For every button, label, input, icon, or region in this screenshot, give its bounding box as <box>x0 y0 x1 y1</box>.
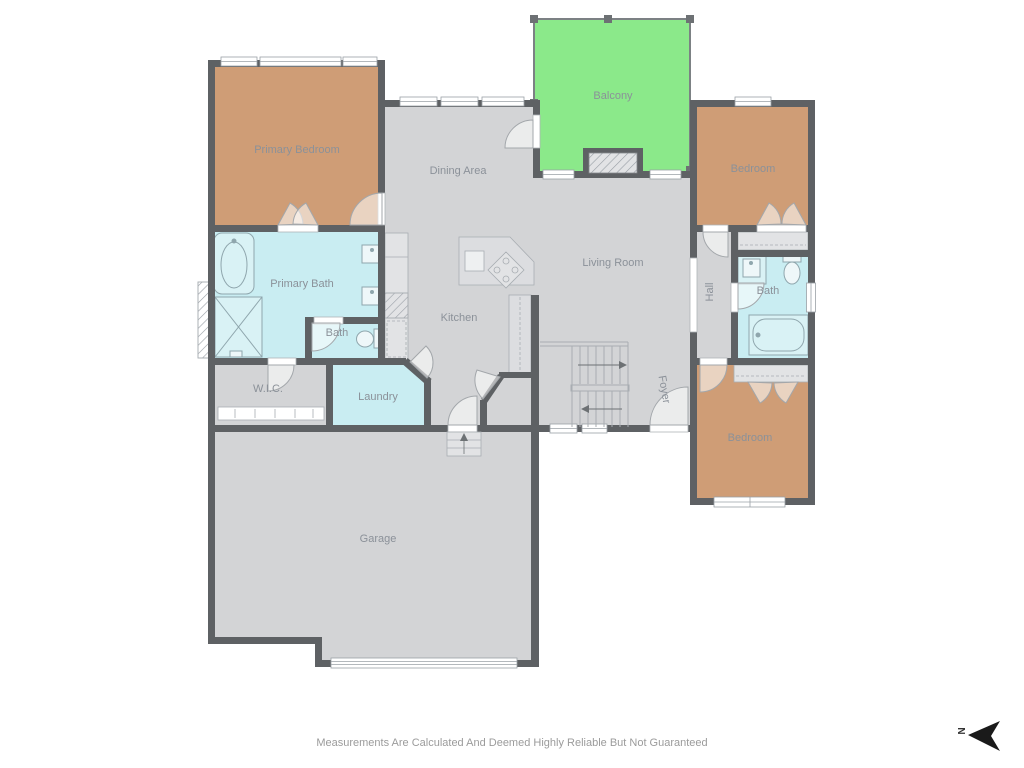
closet-lower-bedroom <box>734 365 808 382</box>
island-sink <box>465 251 484 271</box>
floorplan-page: Primary Bedroom Primary Bath Bath W.I.C.… <box>0 0 1024 768</box>
closet-upper-bedroom <box>738 232 808 250</box>
label-wic: W.I.C. <box>253 383 283 395</box>
north-compass: N <box>955 721 1000 751</box>
label-living: Living Room <box>582 257 643 269</box>
wic-shelf <box>218 407 324 420</box>
fireplace <box>583 148 643 178</box>
label-hall: Hall <box>704 283 716 302</box>
label-bedroom-upper: Bedroom <box>731 163 776 175</box>
garage-steps <box>447 432 481 456</box>
label-bath-hall: Bath <box>757 285 780 297</box>
cooktop-hatched <box>385 293 408 318</box>
disclaimer-text: Measurements Are Calculated And Deemed H… <box>316 737 707 749</box>
label-kitchen: Kitchen <box>441 312 478 324</box>
north-label: N <box>955 727 966 734</box>
label-primary-bath: Primary Bath <box>270 278 334 290</box>
ensuite-toilet <box>357 331 374 347</box>
label-laundry: Laundry <box>358 391 398 403</box>
garage-door <box>331 658 517 668</box>
label-dining: Dining Area <box>430 165 488 177</box>
label-bath-ensuite: Bath <box>326 327 349 339</box>
floorplan-drawing: Primary Bedroom Primary Bath Bath W.I.C.… <box>0 0 1024 768</box>
label-garage: Garage <box>360 533 397 545</box>
label-primary-bedroom: Primary Bedroom <box>254 144 340 156</box>
label-bedroom-lower: Bedroom <box>728 432 773 444</box>
floor-garage <box>215 432 531 660</box>
front-door-sill <box>650 425 688 432</box>
hall-toilet <box>784 262 800 284</box>
north-arrow-icon <box>968 721 1000 751</box>
label-balcony: Balcony <box>593 90 633 102</box>
